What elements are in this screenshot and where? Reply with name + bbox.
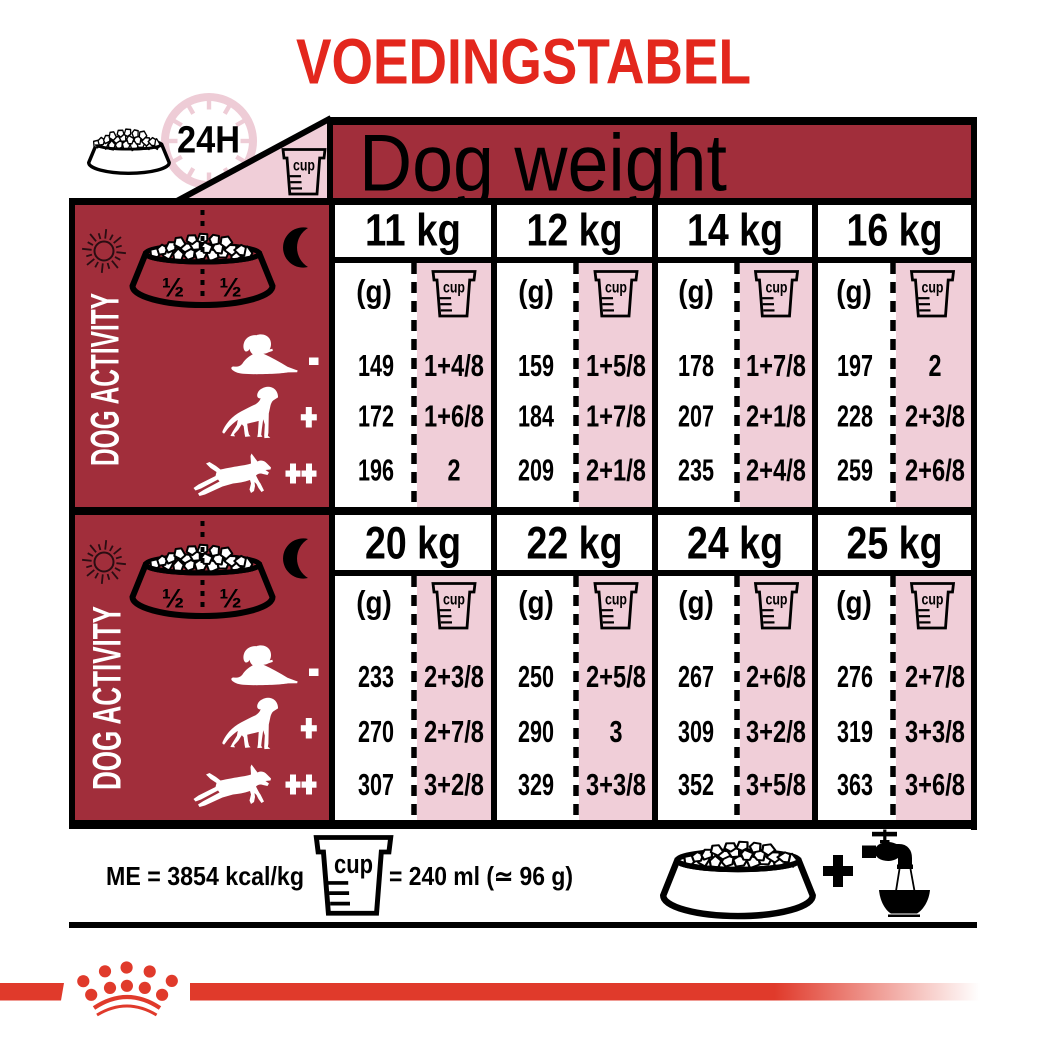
svg-text:22 kg: 22 kg <box>527 518 623 569</box>
svg-text:2+5/8: 2+5/8 <box>586 659 646 694</box>
svg-text:329: 329 <box>518 767 554 802</box>
svg-text:207: 207 <box>678 399 714 434</box>
svg-text:149: 149 <box>358 348 394 383</box>
svg-text:2: 2 <box>448 453 461 488</box>
svg-text:24H: 24H <box>177 120 240 162</box>
svg-text:270: 270 <box>358 714 394 749</box>
svg-text:16 kg: 16 kg <box>847 205 943 256</box>
svg-text:1+4/8: 1+4/8 <box>424 348 484 383</box>
svg-text:2+7/8: 2+7/8 <box>424 714 484 749</box>
svg-text:307: 307 <box>358 767 394 802</box>
svg-text:(g): (g) <box>678 274 714 310</box>
svg-text:196: 196 <box>358 453 394 488</box>
svg-text:2+7/8: 2+7/8 <box>905 659 965 694</box>
svg-text:ME = 3854 kcal/kg: ME = 3854 kcal/kg <box>106 861 304 891</box>
svg-text:(g): (g) <box>518 274 554 310</box>
svg-text:363: 363 <box>837 767 873 802</box>
svg-text:2+3/8: 2+3/8 <box>424 659 484 694</box>
svg-text:209: 209 <box>518 453 554 488</box>
svg-text:2: 2 <box>929 348 942 383</box>
svg-text:Dog weight: Dog weight <box>359 119 727 209</box>
svg-text:25 kg: 25 kg <box>847 518 943 569</box>
svg-text:(g): (g) <box>678 585 714 621</box>
svg-text:172: 172 <box>358 399 394 434</box>
svg-text:184: 184 <box>518 399 555 434</box>
svg-text:DOG ACTIVITY: DOG ACTIVITY <box>86 606 130 790</box>
svg-text:3: 3 <box>610 714 623 749</box>
svg-text:259: 259 <box>837 453 873 488</box>
svg-text:(g): (g) <box>836 585 872 621</box>
svg-text:250: 250 <box>518 659 554 694</box>
svg-text:197: 197 <box>837 348 873 383</box>
svg-text:276: 276 <box>837 659 873 694</box>
svg-text:DOG ACTIVITY: DOG ACTIVITY <box>84 293 128 466</box>
svg-text:(g): (g) <box>518 585 554 621</box>
svg-text:178: 178 <box>678 348 714 383</box>
svg-text:309: 309 <box>678 714 714 749</box>
svg-text:12 kg: 12 kg <box>527 205 623 256</box>
svg-text:(g): (g) <box>356 274 392 310</box>
svg-text:319: 319 <box>837 714 873 749</box>
svg-text:3+2/8: 3+2/8 <box>424 767 484 802</box>
svg-text:2+6/8: 2+6/8 <box>905 453 965 488</box>
svg-text:½: ½ <box>219 584 242 614</box>
svg-text:3+6/8: 3+6/8 <box>905 767 965 802</box>
svg-text:159: 159 <box>518 348 554 383</box>
svg-text:3+3/8: 3+3/8 <box>905 714 965 749</box>
svg-text:3+2/8: 3+2/8 <box>746 714 806 749</box>
svg-text:1+7/8: 1+7/8 <box>586 399 646 434</box>
svg-text:11 kg: 11 kg <box>365 205 461 256</box>
svg-text:1+7/8: 1+7/8 <box>746 348 806 383</box>
svg-text:(g): (g) <box>356 585 392 621</box>
svg-text:= 240 ml (≃ 96 g): = 240 ml (≃ 96 g) <box>389 861 573 891</box>
svg-text:290: 290 <box>518 714 554 749</box>
svg-text:2+3/8: 2+3/8 <box>905 399 965 434</box>
svg-text:1+5/8: 1+5/8 <box>586 348 646 383</box>
svg-text:½: ½ <box>219 273 242 303</box>
svg-text:2+6/8: 2+6/8 <box>746 659 806 694</box>
svg-text:24 kg: 24 kg <box>687 518 783 569</box>
svg-text:VOEDINGSTABEL: VOEDINGSTABEL <box>296 26 751 98</box>
svg-text:235: 235 <box>678 453 714 488</box>
svg-text:2+1/8: 2+1/8 <box>586 453 646 488</box>
svg-text:267: 267 <box>678 659 714 694</box>
svg-text:14 kg: 14 kg <box>687 205 783 256</box>
svg-text:352: 352 <box>678 767 714 802</box>
svg-text:2+4/8: 2+4/8 <box>746 453 806 488</box>
svg-text:228: 228 <box>837 399 873 434</box>
svg-text:3+5/8: 3+5/8 <box>746 767 806 802</box>
svg-text:2+1/8: 2+1/8 <box>746 399 806 434</box>
svg-text:½: ½ <box>162 273 185 303</box>
svg-text:(g): (g) <box>836 274 872 310</box>
svg-text:1+6/8: 1+6/8 <box>424 399 484 434</box>
svg-text:20 kg: 20 kg <box>365 518 461 569</box>
svg-text:3+3/8: 3+3/8 <box>586 767 646 802</box>
svg-text:233: 233 <box>358 659 394 694</box>
svg-text:½: ½ <box>162 584 185 614</box>
